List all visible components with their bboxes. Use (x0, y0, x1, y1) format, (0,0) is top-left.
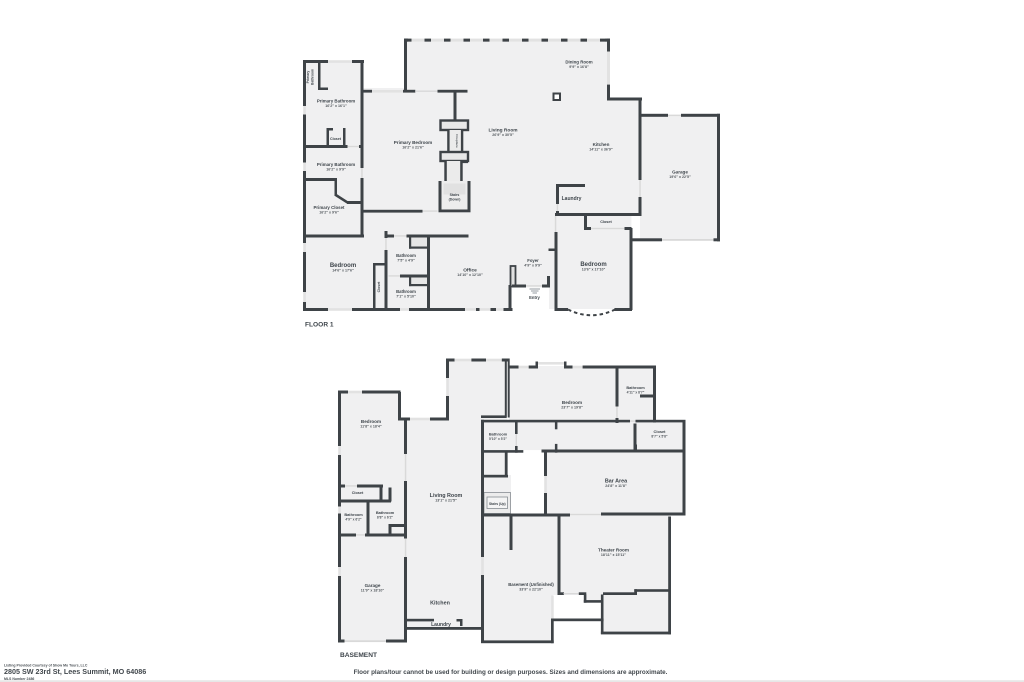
svg-text:11’9” x 18’10”: 11’9” x 18’10” (361, 589, 385, 593)
svg-text:Primary Bedroom: Primary Bedroom (394, 140, 433, 145)
svg-text:Dining Room: Dining Room (565, 60, 592, 65)
svg-text:Garage: Garage (672, 170, 688, 175)
svg-text:Kitchen: Kitchen (430, 601, 450, 607)
svg-text:7’1” x 5’10”: 7’1” x 5’10” (396, 295, 416, 299)
svg-text:16’2” x 16’1”: 16’2” x 16’1” (325, 104, 347, 108)
svg-text:Bathroom: Bathroom (310, 69, 314, 85)
svg-text:Stairs: Stairs (450, 193, 460, 197)
svg-text:4’11” x 8’7”: 4’11” x 8’7” (627, 391, 645, 395)
svg-text:Bathroom: Bathroom (626, 385, 645, 390)
svg-text:Garage: Garage (365, 583, 381, 588)
svg-text:Bathroom: Bathroom (489, 432, 508, 437)
svg-text:16’2” x 9’9”: 16’2” x 9’9” (326, 168, 346, 172)
svg-text:26’9” x 30’5”: 26’9” x 30’5” (492, 133, 514, 137)
svg-text:16’2” x 21’6”: 16’2” x 21’6” (402, 146, 424, 150)
svg-text:Kitchen: Kitchen (593, 142, 610, 147)
svg-text:8’7” x 5’8”: 8’7” x 5’8” (651, 435, 667, 439)
svg-text:Primary: Primary (306, 71, 310, 84)
svg-text:8’8” x 6’2”: 8’8” x 6’2” (377, 516, 393, 520)
svg-text:Fireplace: Fireplace (455, 134, 459, 148)
svg-text:Bedroom: Bedroom (562, 400, 582, 405)
svg-text:14’11” x 36’9”: 14’11” x 36’9” (589, 148, 613, 152)
svg-text:13’6” x 17’10”: 13’6” x 17’10” (582, 268, 606, 272)
svg-text:Closet: Closet (330, 137, 342, 141)
svg-text:13’1” x 21’5”: 13’1” x 21’5” (435, 499, 457, 503)
svg-text:7’5” x 4’9”: 7’5” x 4’9” (397, 259, 415, 263)
svg-text:Floor plans/tour cannot be use: Floor plans/tour cannot be used for buil… (354, 669, 668, 676)
svg-text:Basement (Unfinished): Basement (Unfinished) (508, 582, 554, 587)
svg-text:16’2” x 9’6”: 16’2” x 9’6” (319, 211, 339, 215)
svg-text:Primary Bathroom: Primary Bathroom (317, 99, 355, 104)
svg-text:Theater Room: Theater Room (598, 548, 629, 553)
svg-text:Primary Bathroom: Primary Bathroom (317, 162, 355, 167)
svg-text:18’11” x 15’11”: 18’11” x 15’11” (601, 553, 626, 557)
svg-text:Foyer: Foyer (527, 258, 539, 263)
svg-text:5’10” x 5’2”: 5’10” x 5’2” (489, 437, 507, 441)
svg-text:33’9” x 22’10”: 33’9” x 22’10” (519, 588, 543, 592)
svg-text:Laundry: Laundry (431, 622, 451, 628)
svg-text:Closet: Closet (352, 491, 364, 495)
svg-text:14’6” x 17’6”: 14’6” x 17’6” (332, 269, 354, 273)
svg-text:24’8” x 11’8”: 24’8” x 11’8” (605, 484, 627, 488)
svg-text:9’9” x 16’8”: 9’9” x 16’8” (569, 65, 589, 69)
svg-text:Closet: Closet (377, 281, 381, 293)
svg-text:Bedroom: Bedroom (361, 419, 381, 424)
svg-text:4’9” x 6’2”: 4’9” x 6’2” (345, 518, 361, 522)
svg-text:Bathroom: Bathroom (344, 512, 363, 517)
svg-text:Closet: Closet (600, 220, 612, 224)
svg-text:Bathroom: Bathroom (396, 253, 416, 258)
svg-text:Primary Closet: Primary Closet (314, 205, 346, 210)
svg-text:Entry: Entry (529, 295, 540, 300)
svg-text:Closet: Closet (654, 429, 667, 434)
svg-text:(Down): (Down) (449, 198, 461, 202)
svg-text:19’6” x 22’5”: 19’6” x 22’5” (669, 175, 691, 179)
svg-text:14’10” x 12’10”: 14’10” x 12’10” (457, 273, 483, 277)
svg-text:BASEMENT: BASEMENT (340, 652, 377, 659)
svg-text:2805 SW 23rd St, Lees Summit,: 2805 SW 23rd St, Lees Summit, MO 64086 (4, 667, 146, 676)
svg-text:Bathroom: Bathroom (396, 289, 416, 294)
svg-text:11’8” x 18’4”: 11’8” x 18’4” (360, 425, 382, 429)
svg-text:4’9” x 9’9”: 4’9” x 9’9” (524, 264, 542, 268)
svg-text:Bathroom: Bathroom (376, 510, 395, 515)
svg-text:23’7” x 19’8”: 23’7” x 19’8” (561, 406, 583, 410)
svg-text:FLOOR 1: FLOOR 1 (305, 322, 334, 329)
svg-text:Laundry: Laundry (562, 196, 582, 202)
svg-text:Stairs (Up): Stairs (Up) (489, 502, 506, 506)
